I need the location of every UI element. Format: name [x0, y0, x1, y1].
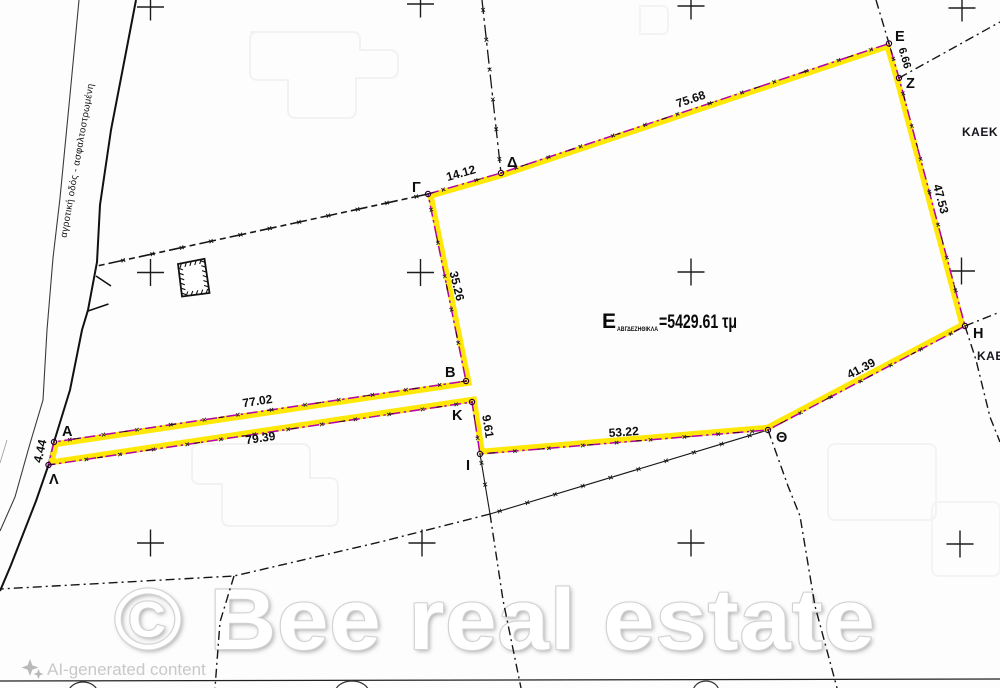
svg-text:Θ: Θ: [776, 430, 787, 446]
svg-text:Ζ: Ζ: [906, 76, 915, 92]
svg-text:Ε: Ε: [602, 310, 616, 333]
svg-text:Ε: Ε: [895, 29, 905, 45]
svg-text:Α: Α: [62, 424, 73, 440]
svg-text:© Bee real estate: © Bee real estate: [114, 572, 876, 668]
svg-text:AI-generated content: AI-generated content: [47, 660, 206, 679]
svg-text:Γ: Γ: [412, 180, 421, 196]
svg-text:Η: Η: [973, 326, 983, 342]
svg-text:Κ: Κ: [452, 408, 463, 424]
svg-text:=5429.61 τμ: =5429.61 τμ: [659, 312, 737, 333]
svg-text:Δ: Δ: [507, 155, 517, 171]
svg-text:Β: Β: [445, 365, 455, 381]
svg-text:Ι: Ι: [466, 458, 470, 474]
svg-text:ΑΒΓΔΕΖΗΘΙΚΛΑ: ΑΒΓΔΕΖΗΘΙΚΛΑ: [617, 326, 658, 333]
svg-text:Λ: Λ: [49, 472, 59, 488]
svg-text:ΚΑΕΚ: ΚΑΕΚ: [962, 125, 998, 139]
svg-text:ΚΑΕ: ΚΑΕ: [977, 349, 1000, 363]
svg-text:53.22: 53.22: [608, 424, 639, 440]
